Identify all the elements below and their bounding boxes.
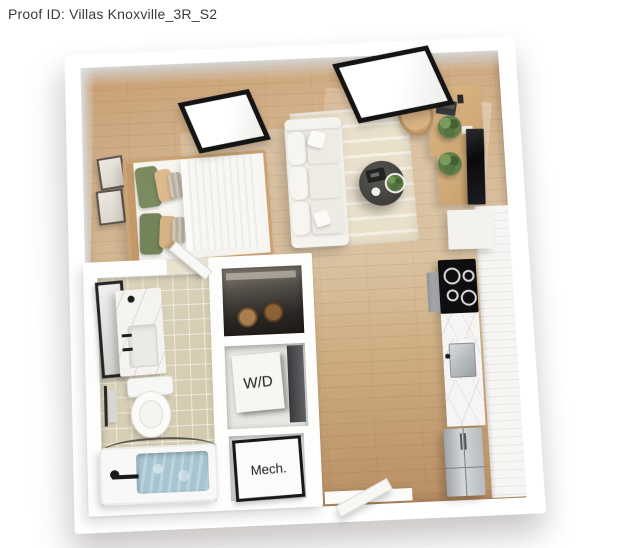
cooktop	[438, 259, 479, 314]
kitchen-sink	[448, 342, 476, 377]
burner	[462, 270, 475, 282]
phone	[457, 95, 464, 104]
burner	[460, 289, 477, 306]
remote-control	[370, 172, 380, 178]
sofa-back-cushion	[287, 131, 307, 165]
towel	[108, 389, 118, 422]
proof-id-text: Proof ID: Villas Knoxville_3R_S2	[8, 6, 217, 22]
wall-mounted-tv	[466, 129, 486, 205]
bathtub	[99, 443, 219, 506]
toilet-seat	[138, 399, 164, 429]
vanity-sink	[127, 324, 159, 368]
sofa-back-cushion	[289, 166, 309, 200]
range-hood-cabinet	[447, 209, 494, 249]
sofa-armrest	[284, 117, 342, 131]
closet-item	[237, 307, 258, 328]
bathroom-and-closet-block: W/D Mech.	[83, 253, 323, 517]
closet-item	[263, 302, 284, 323]
kitchen-sink-counter	[442, 338, 483, 380]
bathtub-water	[136, 451, 209, 494]
floorplan-proof-image: Proof ID: Villas Knoxville_3R_S2	[0, 0, 640, 548]
closet-shelf	[226, 270, 296, 280]
mechanical-label-box: Mech.	[232, 435, 305, 502]
refrigerator	[443, 427, 486, 496]
sofa	[284, 117, 349, 249]
vanity-tap	[127, 295, 134, 302]
burner	[443, 267, 461, 285]
table-plant	[384, 172, 406, 193]
burner	[446, 289, 459, 301]
table-tray	[365, 167, 386, 183]
washer-dryer-label-box: W/D	[231, 352, 284, 413]
decor-sphere	[371, 187, 380, 196]
bed	[122, 150, 274, 266]
bathroom-vanity	[115, 287, 166, 377]
laundry-closet: W/D	[224, 343, 308, 429]
closet	[222, 265, 305, 336]
mechanical-label: Mech.	[250, 459, 287, 477]
fridge-handle	[464, 433, 467, 449]
kitchen-counter	[445, 378, 486, 426]
washer-dryer-label: W/D	[243, 372, 274, 392]
bed-duvet	[181, 154, 264, 251]
mechanical-closet: Mech.	[229, 433, 307, 501]
kitchen-counter	[441, 312, 481, 340]
sofa-seat-cushion	[309, 164, 343, 199]
wall-art-frame	[96, 188, 126, 225]
washer-dryer-unit	[287, 345, 306, 423]
sofa-back-cushion	[291, 201, 311, 235]
apartment-floorplan: W/D Mech.	[64, 36, 546, 534]
floorplan-perspective-wrap: W/D Mech.	[70, 38, 532, 520]
